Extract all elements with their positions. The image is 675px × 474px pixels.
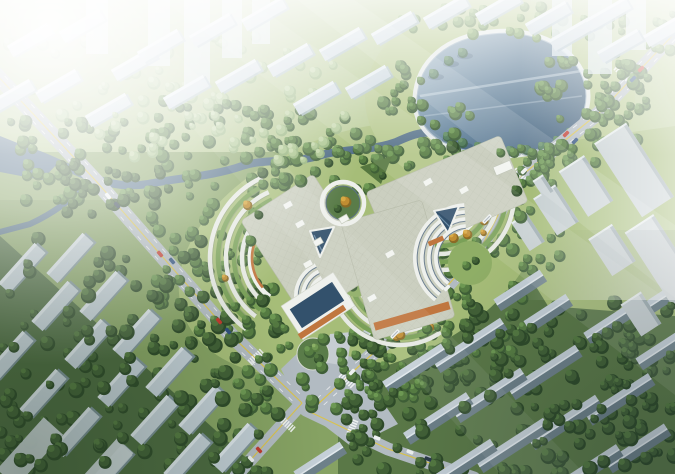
aerial-render-stage [0, 0, 675, 474]
shade-bottom-right [330, 230, 675, 474]
shade-bottom-left [0, 200, 360, 474]
aerial-architectural-rendering [0, 0, 675, 474]
layer-atmosphere [0, 0, 675, 474]
